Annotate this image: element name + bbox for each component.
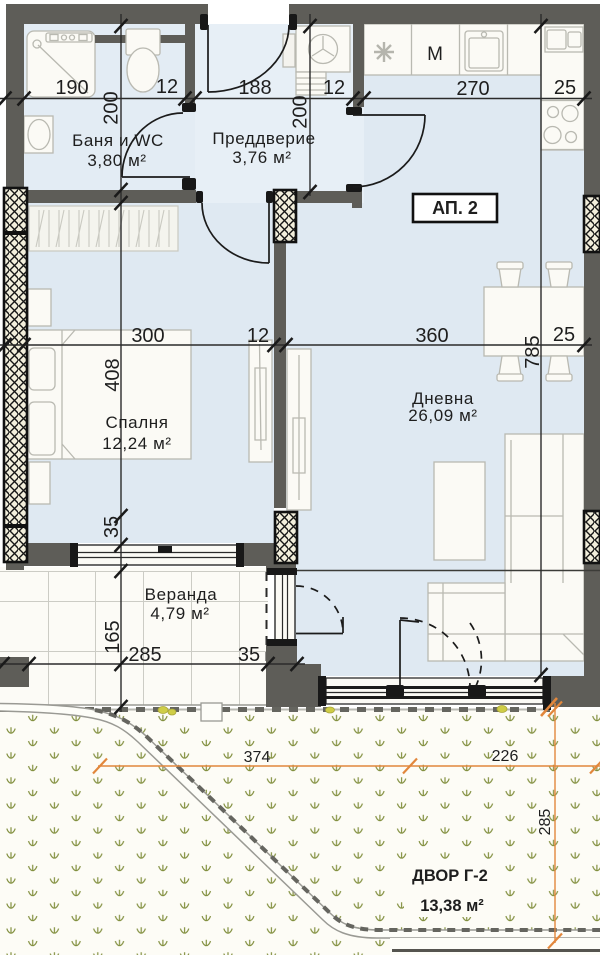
svg-text:408: 408 <box>102 358 124 391</box>
svg-text:270: 270 <box>456 78 489 100</box>
svg-text:285: 285 <box>537 809 554 836</box>
svg-text:226: 226 <box>492 748 519 765</box>
svg-text:25: 25 <box>554 77 576 99</box>
svg-text:285: 285 <box>128 644 161 666</box>
svg-text:Веранда: Веранда <box>145 585 218 604</box>
svg-text:АП. 2: АП. 2 <box>432 198 478 218</box>
svg-text:200: 200 <box>290 95 312 128</box>
svg-text:300: 300 <box>131 325 164 347</box>
svg-text:ДВОР Г-2: ДВОР Г-2 <box>412 867 488 885</box>
svg-text:12: 12 <box>247 325 269 347</box>
svg-text:26,09 м²: 26,09 м² <box>408 406 477 425</box>
svg-text:Спалня: Спалня <box>105 413 168 432</box>
svg-text:Преддверие: Преддверие <box>212 129 315 148</box>
svg-text:3,80 м²: 3,80 м² <box>87 151 146 170</box>
svg-text:12: 12 <box>156 76 178 98</box>
svg-text:3,76 м²: 3,76 м² <box>232 148 291 167</box>
svg-text:25: 25 <box>553 324 575 346</box>
svg-text:165: 165 <box>102 620 124 653</box>
svg-text:35: 35 <box>101 516 123 538</box>
svg-text:12: 12 <box>323 77 345 99</box>
svg-text:200: 200 <box>101 91 123 124</box>
svg-text:374: 374 <box>244 749 271 766</box>
svg-text:13,38 м²: 13,38 м² <box>420 897 484 915</box>
svg-text:12,24 м²: 12,24 м² <box>102 434 171 453</box>
svg-text:360: 360 <box>415 325 448 347</box>
svg-text:35: 35 <box>238 644 260 666</box>
svg-text:4,79 м²: 4,79 м² <box>150 604 209 623</box>
svg-text:М: М <box>427 44 443 65</box>
svg-text:Баня и WC: Баня и WC <box>72 131 164 150</box>
svg-text:188: 188 <box>238 77 271 99</box>
svg-text:785: 785 <box>522 335 544 368</box>
svg-text:190: 190 <box>55 77 88 99</box>
